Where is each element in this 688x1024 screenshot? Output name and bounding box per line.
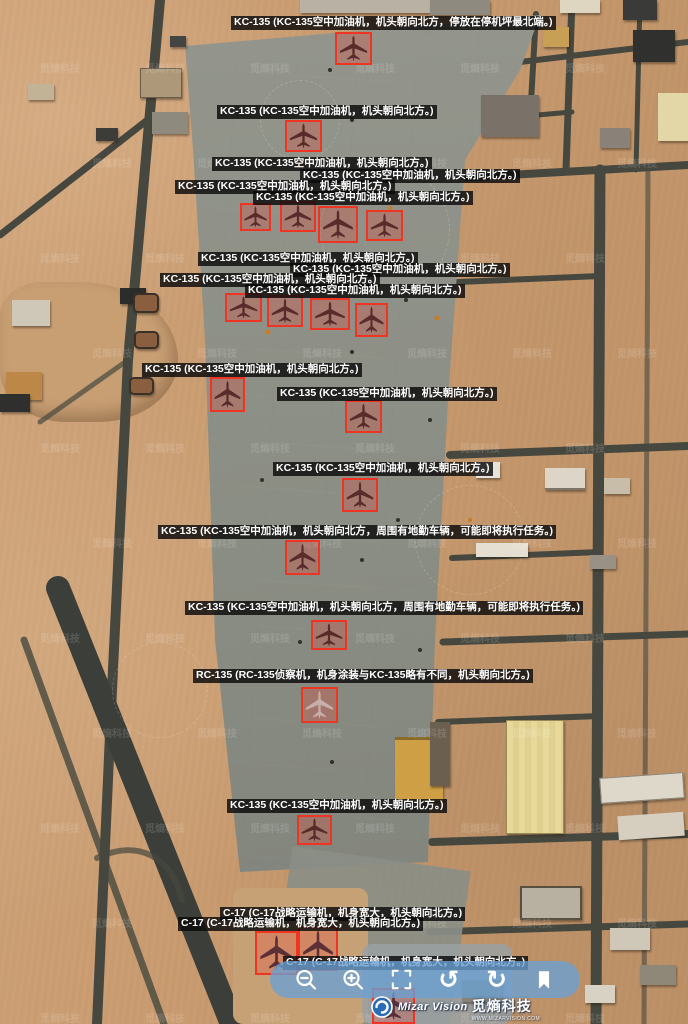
label-layer: KC-135 (KC-135空中加油机，机头朝向北方，停放在停机坪最北端。)KC…: [0, 0, 688, 1024]
rotate-cw-button[interactable]: ↻: [480, 964, 512, 996]
aircraft-annotation-label: RC-135 (RC-135侦察机，机身涂装与KC-135略有不同，机头朝向北方…: [193, 669, 533, 683]
mizar-vision-logo: Mizar Vision 觅熵科技 WWW.MIZARVISION.COM: [370, 994, 540, 1024]
logo-name: Mizar Vision: [398, 1001, 468, 1013]
logo-brand-cn: 觅熵科技: [472, 996, 540, 1016]
mizar-logo-icon: [370, 994, 394, 1024]
viewer-toolbar: ↺ ↻: [270, 961, 580, 998]
aircraft-annotation-label: KC-135 (KC-135空中加油机，机头朝向北方，周围有地勤车辆，可能即将执…: [185, 601, 583, 615]
rotate-ccw-icon: ↺: [438, 967, 459, 992]
logo-website: WWW.MIZARVISION.COM: [472, 1016, 540, 1022]
rotate-ccw-button[interactable]: ↺: [433, 964, 465, 996]
aircraft-annotation-label: KC-135 (KC-135空中加油机，机头朝向北方。): [273, 462, 493, 476]
fit-view-button[interactable]: [385, 964, 417, 996]
bookmark-icon: [532, 968, 556, 992]
aircraft-annotation-label: KC-135 (KC-135空中加油机，机头朝向北方。): [217, 105, 437, 119]
aircraft-annotation-label: KC-135 (KC-135空中加油机，机头朝向北方。): [142, 363, 362, 377]
aircraft-annotation-label: KC-135 (KC-135空中加油机，机头朝向北方，周围有地勤车辆，可能即将执…: [158, 525, 556, 539]
fit-view-icon: [389, 967, 414, 992]
aircraft-annotation-label: KC-135 (KC-135空中加油机，机头朝向北方。): [245, 284, 465, 298]
aircraft-annotation-label: KC-135 (KC-135空中加油机，机头朝向北方。): [253, 191, 473, 205]
zoom-in-button[interactable]: [337, 964, 369, 996]
zoom-in-icon: [340, 967, 366, 993]
zoom-out-button[interactable]: [290, 964, 322, 996]
zoom-out-icon: [293, 967, 319, 993]
aircraft-annotation-label: KC-135 (KC-135空中加油机，机头朝向北方。): [227, 799, 447, 813]
aircraft-annotation-label: C-17 (C-17战略运输机，机身宽大，机头朝向北方。): [178, 917, 423, 931]
aircraft-annotation-label: KC-135 (KC-135空中加油机，机头朝向北方。): [277, 387, 497, 401]
bookmark-button[interactable]: [528, 964, 560, 996]
rotate-cw-icon: ↻: [486, 967, 507, 992]
aircraft-annotation-label: KC-135 (KC-135空中加油机，机头朝向北方，停放在停机坪最北端。): [231, 16, 556, 30]
annotated-satellite-view: 觅熵科技觅熵科技觅熵科技觅熵科技觅熵科技觅熵科技觅熵科技觅熵科技觅熵科技觅熵科技…: [0, 0, 688, 1024]
